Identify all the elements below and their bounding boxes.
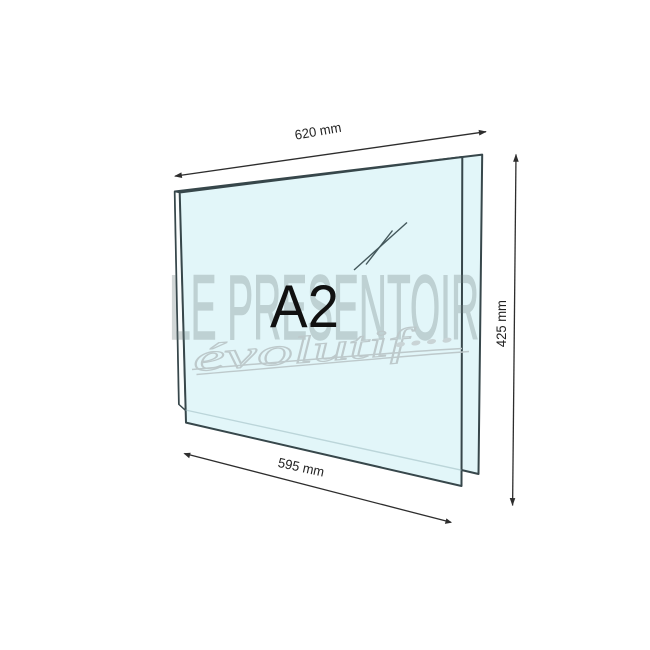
- svg-text:620 mm: 620 mm: [294, 120, 343, 143]
- svg-text:425 mm: 425 mm: [494, 300, 509, 347]
- svg-text:A2: A2: [270, 273, 339, 340]
- svg-text:595 mm: 595 mm: [277, 455, 326, 480]
